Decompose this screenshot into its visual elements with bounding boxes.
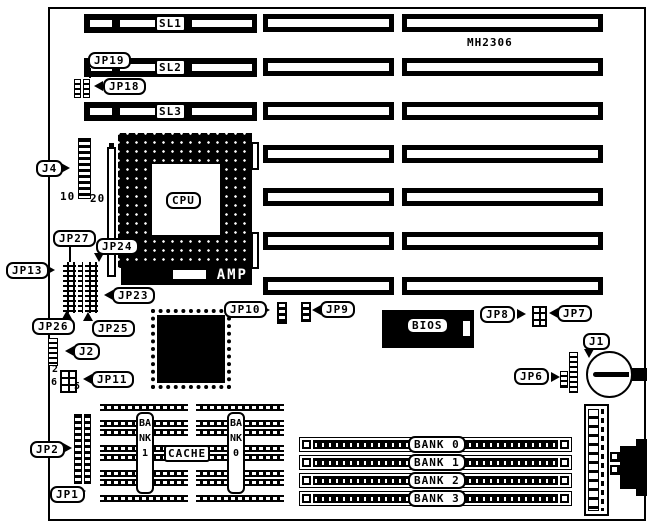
jp10-jumper	[277, 302, 287, 324]
label-simm-bank0: BANK 0	[408, 436, 466, 453]
slot-segment	[402, 58, 603, 76]
power-connector	[584, 404, 609, 516]
j4-pin20-label: 20	[90, 192, 105, 205]
slot-slit	[90, 108, 112, 115]
keyboard-connector-tab	[610, 452, 621, 462]
cpu-side-nub	[109, 143, 114, 148]
jumper-matrix	[63, 262, 98, 313]
simm-clip	[302, 440, 311, 449]
label-sl1: SL1	[155, 15, 186, 32]
slot-slit	[120, 108, 158, 115]
amp-connector: AMP	[121, 264, 252, 285]
slot-segment	[263, 14, 394, 32]
callout-jp19: JP19	[88, 52, 131, 69]
label-simm-bank2: BANK 2	[408, 472, 466, 489]
callout-jp11: JP11	[91, 371, 134, 388]
callout-jp6: JP6	[514, 368, 549, 385]
jp11-pin6-label: 6	[51, 377, 57, 388]
slot-segment	[263, 277, 394, 295]
slot-segment	[263, 58, 394, 76]
slot-segment	[402, 232, 603, 250]
battery-tab	[593, 372, 629, 377]
callout-jp26: JP26	[32, 318, 75, 335]
simm-clip	[560, 476, 569, 485]
callout-jp9: JP9	[320, 301, 355, 318]
slot-segment	[402, 145, 603, 163]
label-cache-bank0: BANK0	[227, 412, 245, 494]
label-cache: CACHE	[164, 445, 210, 462]
callout-jp8: JP8	[480, 306, 515, 323]
jp11-pin5-label: 5	[74, 381, 80, 392]
jp25-pointer	[83, 312, 93, 321]
callout-jp2: JP2	[30, 441, 65, 458]
label-bios: BIOS	[406, 317, 449, 334]
battery-edge-stub	[631, 368, 647, 381]
callout-jp24: JP24	[96, 238, 139, 255]
slot-slit	[192, 64, 252, 71]
simm-clip	[302, 476, 311, 485]
keyboard-connector-tab	[610, 465, 621, 475]
slot-slit	[90, 20, 112, 27]
j4-pin10-label: 10	[60, 190, 75, 203]
slot-segment	[402, 277, 603, 295]
jp18-jumper	[83, 79, 90, 98]
slot-slit	[192, 20, 252, 27]
label-simm-bank1: BANK 1	[408, 454, 466, 471]
tab-hole	[612, 467, 617, 472]
callout-j4: J4	[36, 160, 63, 177]
simm-clip	[560, 440, 569, 449]
tab-hole	[612, 454, 617, 459]
callout-jp1: JP1	[50, 486, 85, 503]
label-sl3: SL3	[155, 103, 186, 120]
jumper-matrix-col	[63, 262, 76, 313]
jp19-pointer-line	[89, 68, 91, 78]
keyboard-connector-body	[620, 446, 637, 489]
jp6-header	[569, 352, 578, 393]
regulator-bar	[251, 142, 259, 170]
simm-clip	[302, 458, 311, 467]
amp-label: AMP	[217, 267, 248, 283]
slot-slit	[192, 108, 252, 115]
jp2-jp1-header	[74, 414, 91, 484]
slot-segment	[263, 232, 394, 250]
header-column	[84, 414, 92, 484]
label-sl2: SL2	[155, 59, 186, 76]
jumper-matrix-col	[85, 262, 98, 313]
callout-j2: J2	[73, 343, 100, 360]
jp6-header-2	[560, 371, 568, 388]
cpu-side-connector	[107, 147, 116, 277]
motherboard-layout-diagram: SL1 SL2 SL3 MH2306 JP19 JP18 J4 10 20 CP…	[0, 0, 653, 527]
slot-slit	[120, 20, 158, 27]
jp8-jp7-jumper	[532, 306, 547, 327]
callout-jp27: JP27	[53, 230, 96, 247]
slot-segment	[263, 145, 394, 163]
callout-jp13: JP13	[6, 262, 49, 279]
jumper-matrix-col	[78, 262, 83, 313]
bios-notch	[463, 321, 470, 336]
qfp-chip	[157, 315, 225, 383]
jp18-pointer	[94, 81, 103, 91]
callout-jp7: JP7	[557, 305, 592, 322]
simm-clip	[560, 458, 569, 467]
callout-jp23: JP23	[112, 287, 155, 304]
j4-header	[78, 138, 91, 199]
slot-segment	[402, 102, 603, 120]
label-simm-bank3: BANK 3	[408, 490, 466, 507]
regulator-bar	[251, 232, 259, 269]
callout-jp18: JP18	[103, 78, 146, 95]
jp19-jumper	[74, 79, 81, 98]
simm-clip	[302, 494, 311, 503]
jp6-pointer	[551, 372, 560, 382]
j1-pointer	[584, 349, 594, 358]
simm-clip	[560, 494, 569, 503]
jp9-jumper	[301, 302, 311, 322]
slot-segment	[263, 102, 394, 120]
jp8-pointer	[517, 309, 526, 319]
keyboard-connector	[636, 439, 647, 496]
j2-header	[48, 338, 58, 366]
slot-segment	[263, 188, 394, 206]
label-cache-bank1: BANK1	[136, 412, 154, 494]
jp11-pin2-label: 2	[52, 364, 58, 375]
jp27-pointer-line	[69, 246, 71, 262]
header-column	[74, 414, 82, 484]
amp-window	[173, 270, 206, 279]
callout-jp10: JP10	[224, 301, 267, 318]
callout-jp25: JP25	[92, 320, 135, 337]
slot-segment	[402, 188, 603, 206]
callout-j1: J1	[583, 333, 610, 350]
slot-segment	[402, 14, 603, 32]
label-cpu: CPU	[166, 192, 201, 209]
model-number: MH2306	[467, 36, 513, 49]
